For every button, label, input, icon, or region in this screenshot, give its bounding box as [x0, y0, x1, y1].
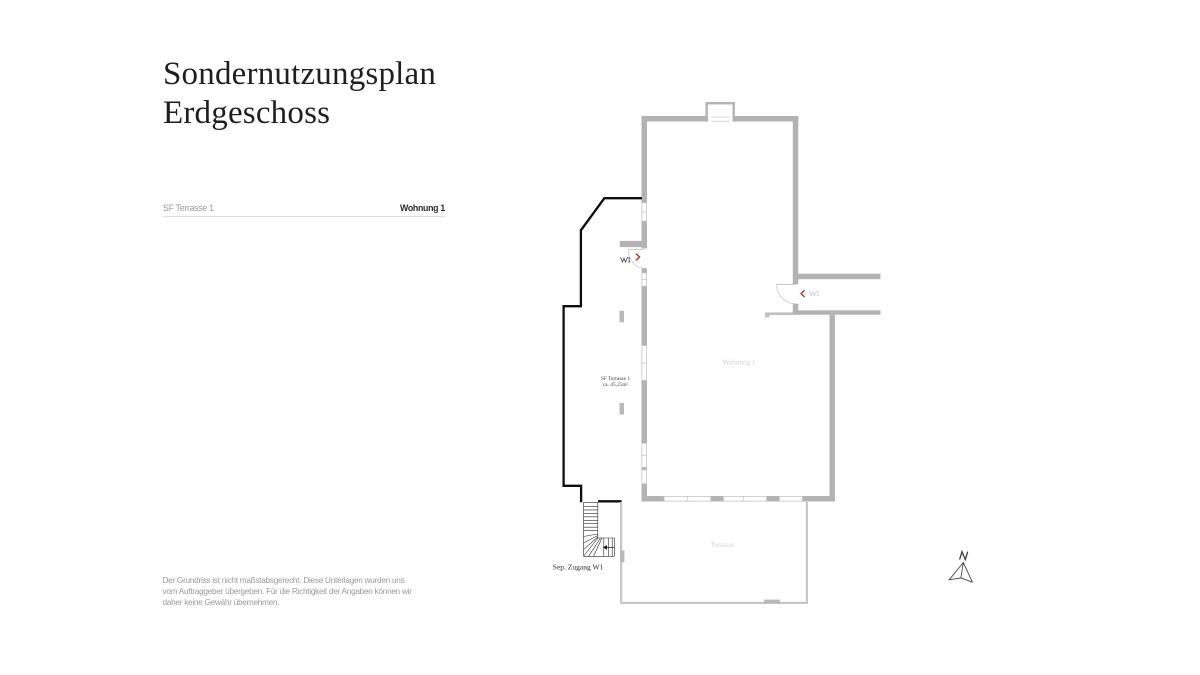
- svg-text:Terrasse: Terrasse: [711, 541, 735, 549]
- svg-text:Sep. Zugang W1: Sep. Zugang W1: [553, 562, 604, 571]
- svg-text:Wohnung 1: Wohnung 1: [722, 358, 756, 366]
- svg-text:ca. 45,25m²: ca. 45,25m²: [603, 382, 629, 388]
